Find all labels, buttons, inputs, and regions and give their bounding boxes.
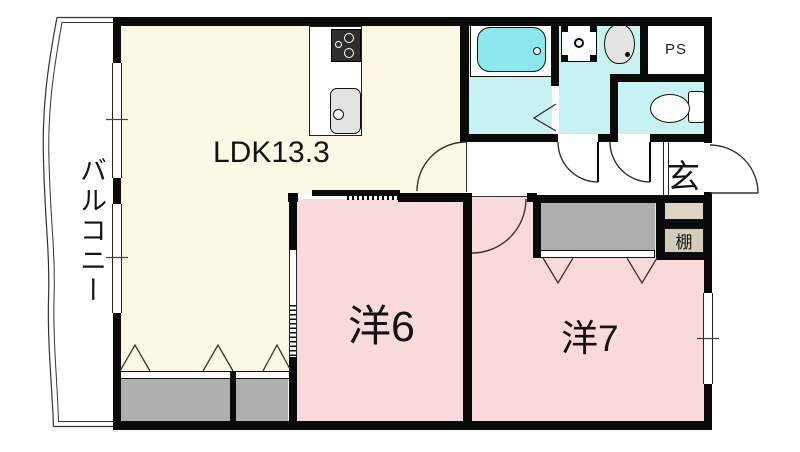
wall-shelf-divider: [664, 220, 704, 228]
shoe-cabinet: [664, 202, 704, 220]
room6-label: 洋6: [348, 292, 415, 354]
wall-left-mid: [113, 178, 121, 204]
closet-ldk-right: [236, 379, 288, 421]
closet-room7-door-track: [540, 250, 655, 258]
window-right-room7: [703, 293, 713, 384]
wall-ldk-bath-divider: [460, 26, 469, 142]
sliding-door-panel-hatch: [289, 305, 297, 357]
sliding-door-opening-ldk-room6: [289, 250, 297, 305]
wall-bath-washroom-divider: [551, 26, 559, 86]
kitchen-sink-icon: [330, 88, 361, 134]
entrance-opening: [704, 143, 712, 192]
wall-shelf-bottom: [664, 253, 712, 260]
wall-bottom: [113, 421, 712, 430]
wall-closet-room7-left: [533, 195, 541, 258]
wall-room6-room7-divider: [463, 193, 472, 421]
wall-left-lower: [113, 313, 121, 428]
ps-label: PS: [648, 25, 704, 74]
toilet-icon: [650, 94, 690, 123]
window-left-upper: [112, 63, 122, 178]
wall-washroom-toilet-divider: [610, 82, 618, 142]
stove-icon: [331, 29, 361, 62]
closet-ldk-divider-wall: [230, 371, 236, 421]
vanity-sink-icon: [604, 24, 635, 64]
genkan-step-line-outer: [663, 142, 664, 195]
window-left-lower: [112, 204, 122, 313]
wall-room6-top-dashed: [347, 196, 399, 200]
shelf-label: 棚: [676, 228, 693, 253]
wall-right-mid: [704, 192, 712, 293]
washing-machine-pan-icon: [561, 25, 597, 62]
closet-ldk-left: [121, 379, 230, 421]
bathtub-icon: [477, 27, 546, 72]
toilet-tank: [688, 91, 705, 123]
wall-closet-room7-top: [533, 195, 656, 203]
wall-hall-top-left: [460, 134, 558, 142]
door-swing-arc-toilet: [610, 142, 650, 182]
wall-ldk-room6-upper: [289, 193, 297, 250]
shelf-box: 棚: [664, 228, 704, 253]
closet-room7: [540, 203, 655, 250]
wall-ps-bottom: [610, 74, 712, 82]
ldk-label: LDK13.3: [213, 136, 330, 170]
door-swing-arc-washroom: [558, 142, 598, 182]
wall-ldk-room6-lower: [289, 357, 297, 421]
wall-hall-top-right: [650, 134, 712, 142]
washroom-floor-lower: [559, 82, 610, 134]
balcony-label: バルコニー: [72, 156, 111, 306]
floorplan: 棚: [0, 0, 800, 452]
wall-room6-top-solid: [398, 193, 468, 202]
wall-hall-top-mid: [598, 134, 610, 142]
room7-label: 洋7: [561, 308, 619, 362]
wall-top: [113, 17, 712, 26]
genkan-label: 玄: [667, 150, 700, 198]
wall-left-upper: [113, 17, 121, 63]
wall-genkan-left: [656, 195, 664, 260]
wall-right-lower: [704, 384, 712, 428]
closet-ldk-door-track: [119, 371, 296, 379]
wall-washroom-ps-divider: [640, 17, 648, 78]
door-swing-arc-entrance: [710, 145, 758, 193]
